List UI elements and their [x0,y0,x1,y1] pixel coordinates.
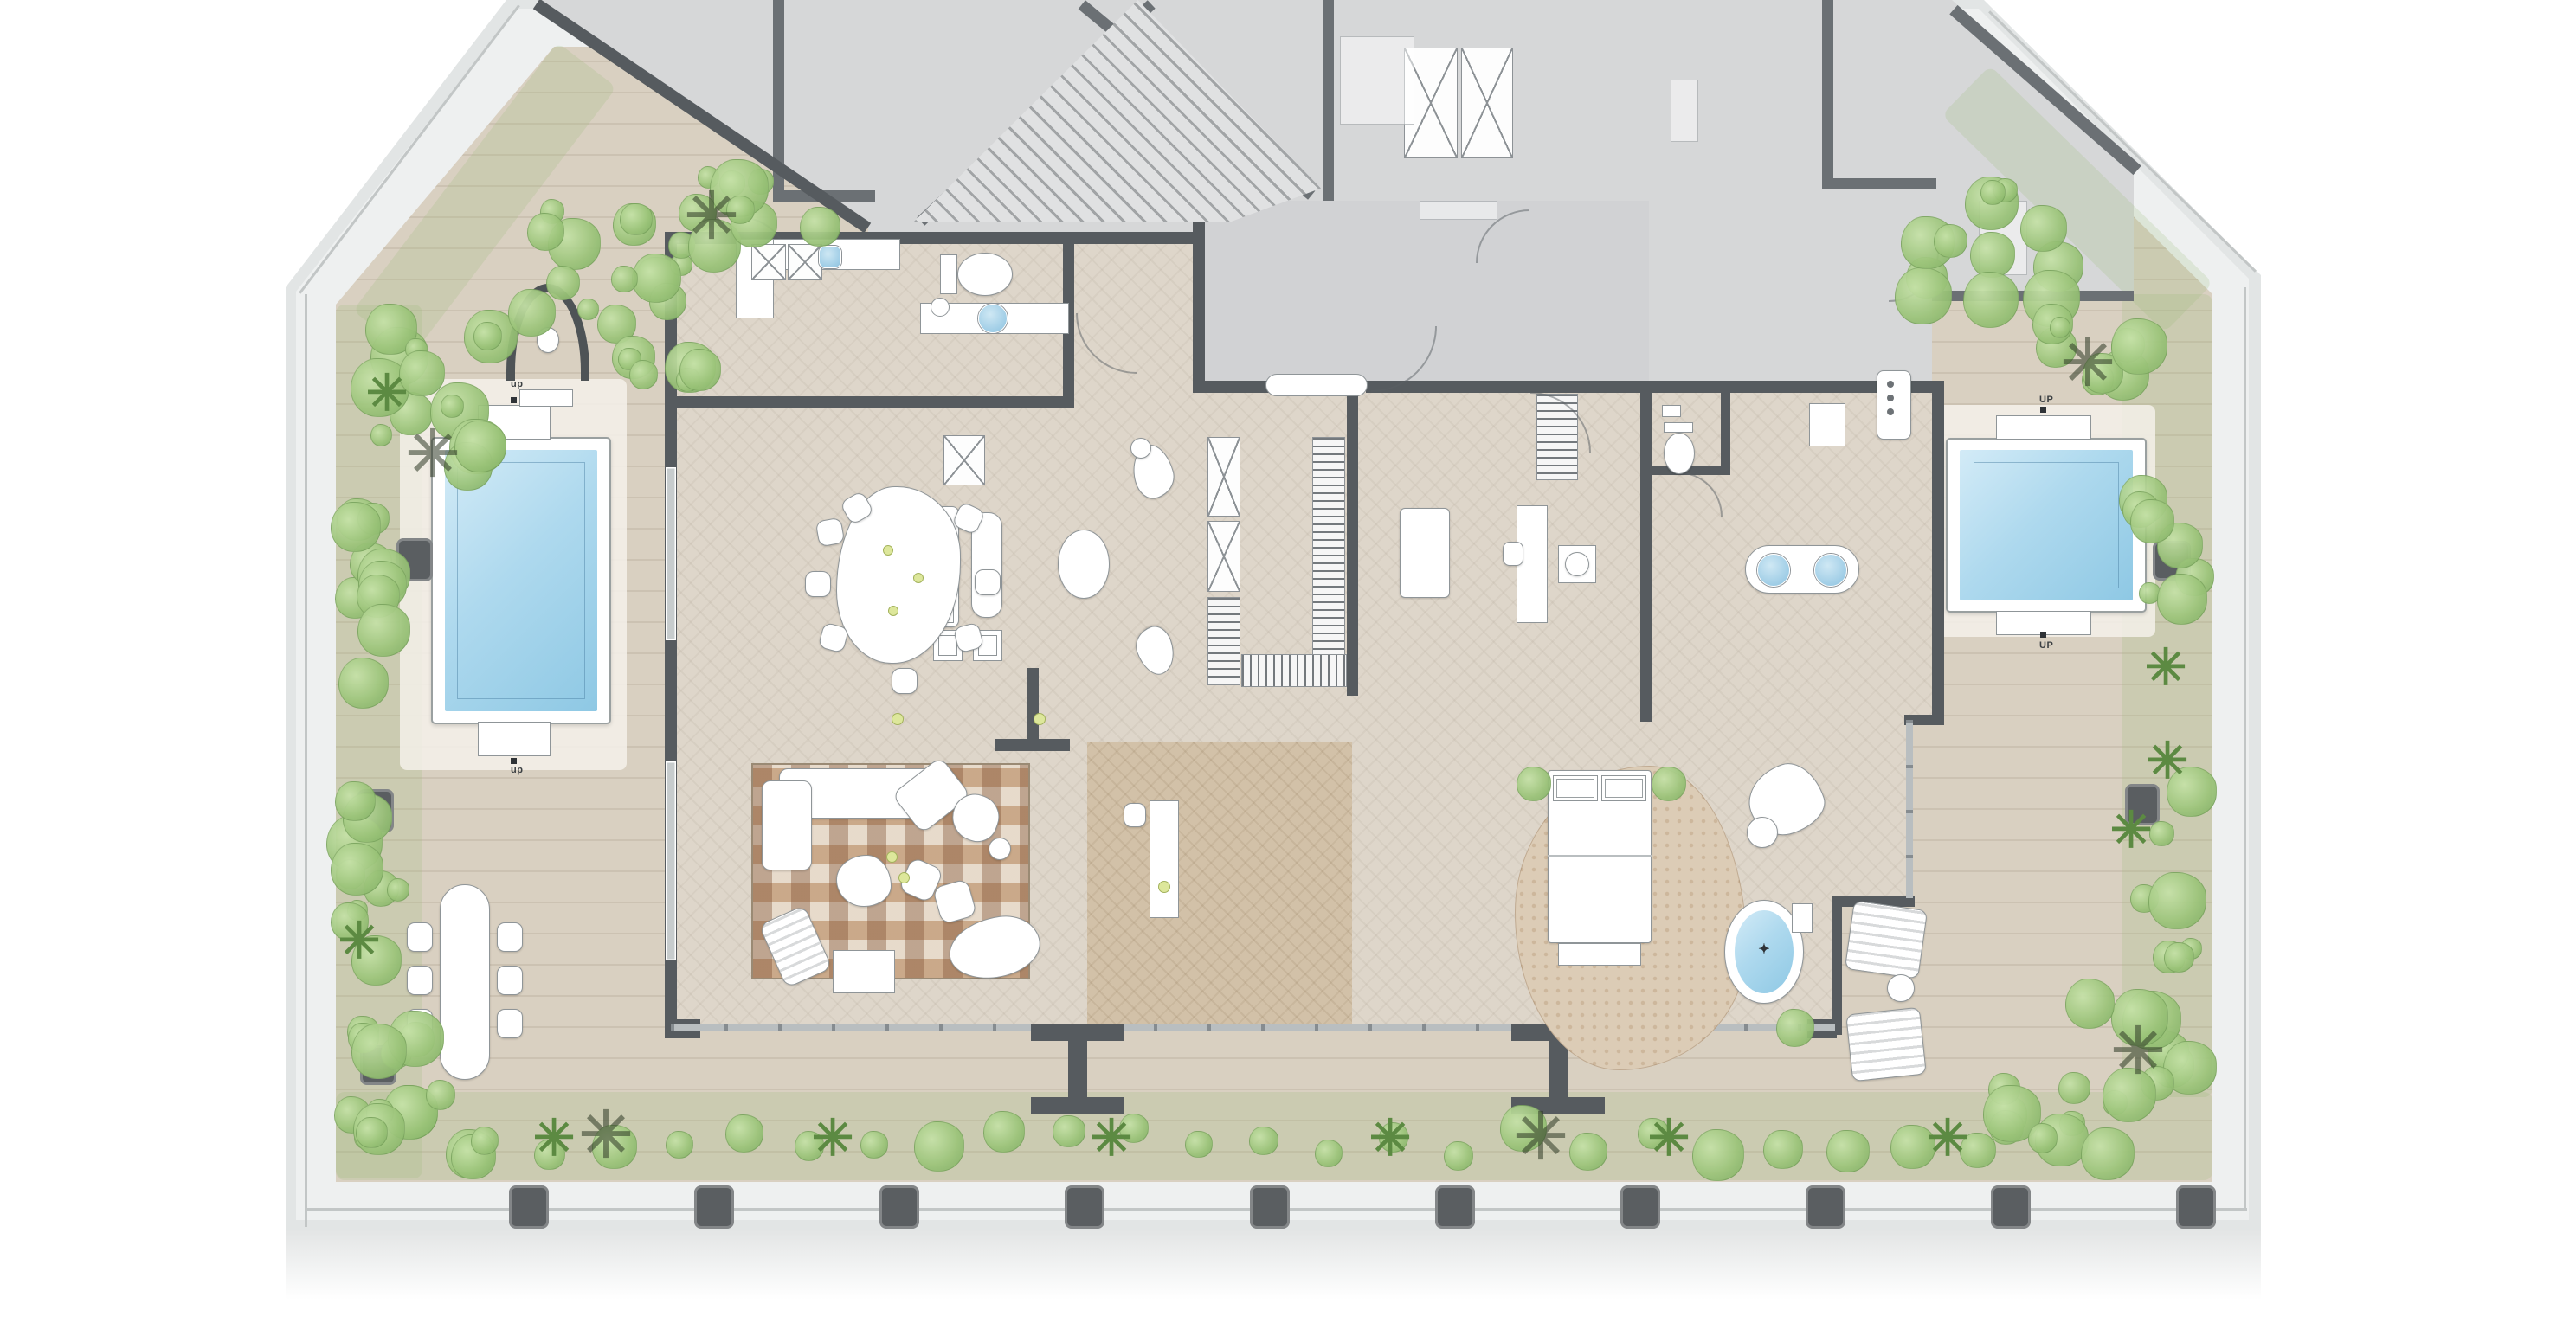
palm-icon: ✳ [1641,1111,1697,1166]
closet-wardrobe-a [1207,437,1240,517]
shower-knob-0 [1887,381,1894,388]
hedge-blob [1444,1141,1473,1171]
right-pool-waterline [1974,462,2119,588]
palm-icon: ✳ [1084,1111,1139,1166]
hedge-blob [1315,1140,1342,1166]
tree-icon: ✳ [2053,329,2122,398]
tub-drain-icon: ✦ [1755,941,1773,959]
west-window-b [666,761,676,960]
left-pool-waterline [457,462,585,699]
bedroom-plant [1776,1009,1814,1047]
parapet-planter-0 [509,1185,549,1229]
lobby-bench [1420,201,1497,220]
parapet-planter-6 [1620,1185,1660,1229]
common-wall-c [1323,0,1334,201]
living-games-table [833,950,895,993]
closet-east-wall [1347,391,1358,696]
plant-blob [611,266,638,292]
west-window-a [666,467,676,640]
guest-closet-a [751,244,786,280]
tub-side-table [1792,903,1813,933]
foyer-side-table [1130,438,1151,459]
bed-pillow-a [1553,775,1598,801]
generated-layer: ✦✳✳✳✳✳✳✳✳✳✳✳✳✳✳✳✳✳upupUPUP [0,0,2576,1323]
outdoor-chair-0 [407,922,433,952]
plant-blob [387,878,410,902]
shower-knob-2 [1887,408,1894,415]
elevator-shaft-b [1461,48,1513,158]
neighbor-fixture [1671,80,1698,142]
plant-blob [441,395,464,418]
parapet-planter-1 [694,1185,734,1229]
living-candle-0 [886,851,898,863]
plant-blob [629,360,659,389]
dressing-bath-wall [1640,391,1652,722]
plant-blob [335,781,375,821]
living-side-ball [989,838,1011,860]
plant-blob [338,658,390,709]
plant-blob [2148,872,2206,929]
plant-blob [2130,499,2174,543]
column-stem-1 [1549,1041,1568,1100]
wc-door-arc [1678,472,1723,517]
plant-blob [1895,267,1952,324]
palm-icon: ✳ [2138,640,2193,696]
hedge-blob [1185,1131,1212,1158]
dining-candle-1 [913,573,924,583]
left-pool-step-bottom [478,722,551,756]
nightstand-plant-a [1517,767,1551,801]
wc-sink [1662,405,1681,417]
plant-blob [357,604,410,657]
plant-blob [632,254,682,304]
dressing-console [1517,505,1548,623]
study-chair [1124,803,1146,827]
dressing-armchair [1503,542,1523,566]
dining-chair-1 [815,517,846,548]
wc-east-wall [1721,391,1730,475]
left-pool-marker-bottom [511,758,517,764]
up-label: up [511,379,523,389]
plant-blob [1980,180,2006,205]
plant-blob [2157,574,2208,625]
mb-cabinet [1809,403,1845,446]
dining-chair-2 [805,571,831,597]
dining-candle-2 [888,606,898,616]
guest-soap-dish [931,298,950,317]
common-wall-d [1822,0,1833,189]
common-wall-e [1822,178,1936,189]
dressing-island [1400,508,1450,598]
palm-icon: ✳ [2103,803,2159,858]
hedge-blob [2081,1127,2134,1180]
parapet-planter-4 [1250,1185,1290,1229]
bed-bench [1558,943,1641,966]
lobby-west-wall [1193,201,1205,393]
hedge-blob [1249,1127,1278,1156]
bed-blanket-line [1548,855,1652,857]
living-candle-1 [898,872,910,883]
closet-wardrobe-d [1312,437,1345,686]
bath-door-arc [1076,313,1137,374]
palm-icon: ✳ [332,914,387,969]
bedroom-east-wall [1832,896,1842,1035]
plant-blob [473,322,502,350]
right-pool-step-top [1996,415,2091,440]
up-label: UP [2039,640,2053,651]
closet-wardrobe-b [1207,521,1240,592]
plant-blob [527,213,565,251]
plant-blob [2020,205,2067,252]
hedge-blob [983,1111,1025,1153]
hedge-blob [1692,1129,1744,1181]
parapet-planter-7 [1806,1185,1845,1229]
guest-sink-b [978,304,1008,333]
dressing-door-arc [1530,392,1591,453]
palm-icon: ✳ [1920,1111,1975,1166]
dining-candle-0 [883,545,893,556]
plant-blob [426,1080,456,1110]
foyer-t-wall-cap [995,739,1070,751]
palm-icon: ✳ [2140,734,2195,789]
right-pool-marker-top [2040,407,2046,413]
terrace-side-table [1887,974,1915,1002]
foyer-t-wall-stem [1027,668,1039,749]
hedge-blob [1053,1115,1085,1147]
coffee-table-blob [836,855,892,907]
parapet-planter-8 [1991,1185,2031,1229]
mb-sink-b [1814,554,1847,587]
dining-chair-6 [975,569,1001,595]
outdoor-chair-1 [407,966,433,995]
hedge-blob [666,1131,693,1159]
plant-blob [331,843,383,896]
plant-blob [331,502,381,552]
hedge-blob [1763,1130,1802,1169]
wc-bowl [1664,433,1695,474]
hedge-blob [1826,1130,1869,1172]
foyer-chair-bottom [1130,622,1182,680]
hedge-blob [860,1131,888,1159]
plant-blob [351,1024,407,1079]
right-pool-marker-bottom [2040,632,2046,638]
outdoor-dining-table [440,884,490,1080]
foyer-round-table [1058,530,1110,599]
guest-closet-b [788,244,822,280]
bed-pillow-b [1601,775,1646,801]
plant-blob [679,349,722,391]
study-desk [1150,800,1179,918]
plant-blob [1970,232,2015,277]
floor-plan: ✦✳✳✳✳✳✳✳✳✳✳✳✳✳✳✳✳✳upupUPUP [0,0,2576,1323]
column-stem-0 [1068,1041,1087,1100]
nightstand-plant-b [1652,767,1686,801]
hedge-blob [914,1121,963,1171]
kitchen-tall-cabinet [943,435,985,485]
hedge-blob [471,1127,499,1155]
outdoor-chair-5 [497,1009,523,1038]
elevator-door [1265,374,1368,396]
closet-wardrobe-c [1207,597,1240,685]
parapet-planter-3 [1065,1185,1104,1229]
shower-knob-1 [1887,395,1894,401]
ceiling-light-0 [892,713,904,725]
outdoor-chair-3 [497,922,523,952]
plant-blob [620,203,653,236]
terrace-lounger-a [1845,900,1928,979]
neighbor-bed [1340,36,1414,125]
parapet-planter-5 [1435,1185,1475,1229]
parapet-planter-2 [879,1185,919,1229]
shower-column [1877,370,1911,440]
ceiling-light-1 [1034,713,1046,725]
closet-wardrobe-e [1241,654,1347,687]
stair-block [914,0,1321,222]
plant-blob [546,266,581,300]
study-lamp [1158,881,1170,893]
palm-icon: ✳ [805,1111,860,1166]
hedge-blob [725,1114,764,1153]
bath-east-wall [1932,388,1944,725]
plant-blob [577,299,599,320]
plant-blob [1934,224,1967,258]
shower-step [519,389,573,407]
wc-tank [1664,422,1693,433]
outdoor-chair-4 [497,966,523,995]
guest-toilet-bowl [957,253,1013,296]
parapet-edge-left [305,294,307,1227]
lobby-south-wall-a [1205,381,1269,393]
hedge-blob [2028,1123,2058,1153]
tree-icon: ✳ [2103,1017,2173,1086]
plant-blob [800,207,840,247]
terrace-lounger-b [1845,1007,1927,1082]
chaise-ottoman [1747,817,1778,848]
bedroom-east-glazing [1906,720,1913,898]
bath-south-wall [671,396,1073,408]
guest-sink-a [819,246,841,268]
tree-icon: ✳ [571,1101,641,1170]
parapet-edge-right [2244,287,2246,1211]
plant-blob [508,289,556,337]
plant-blob [1963,272,2019,327]
tree-icon: ✳ [398,420,467,489]
up-label: UP [2039,395,2053,405]
makeup-stool [1565,552,1589,576]
tree-icon: ✳ [1506,1102,1575,1172]
sofa-left [762,780,812,870]
up-label: up [511,765,523,775]
tree-icon: ✳ [677,182,746,251]
left-pool-marker-top [511,397,517,403]
plant-blob [2164,942,2194,973]
plant-blob [370,424,392,446]
dining-chair-4 [892,668,918,694]
lobby-south-wall-b [1366,381,1649,393]
parapet-planter-9 [2176,1185,2216,1229]
plant-blob [356,1117,388,1149]
mb-sink-a [1757,554,1790,587]
guest-toilet-tank [940,254,957,294]
column-flange-top-0 [1031,1024,1124,1041]
palm-icon: ✳ [1362,1111,1418,1166]
palm-icon: ✳ [359,366,415,421]
